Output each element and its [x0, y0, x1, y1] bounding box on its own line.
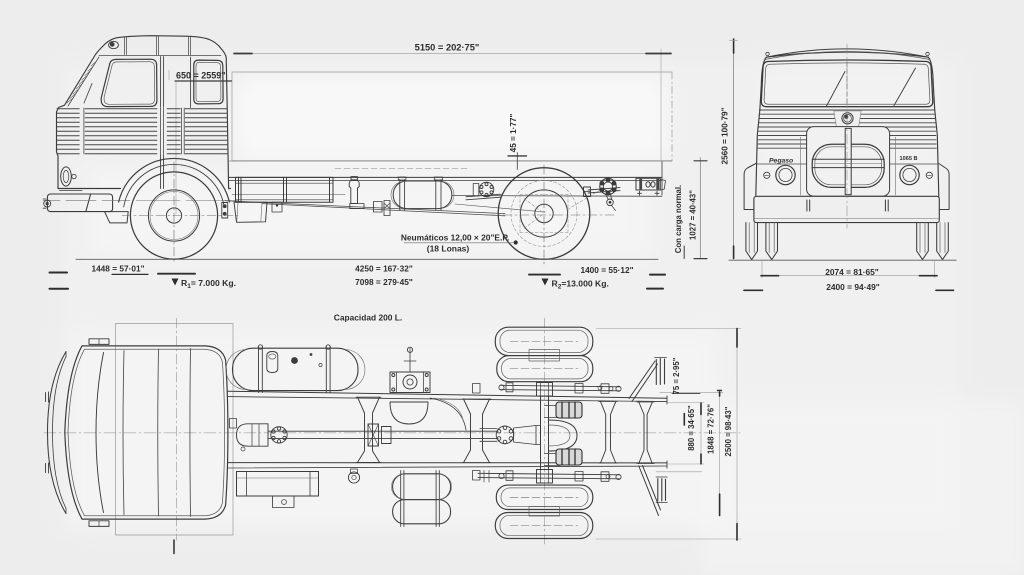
svg-text:650 = 2559": 650 = 2559" — [176, 71, 226, 81]
svg-text:45 = 1·77": 45 = 1·77" — [509, 114, 518, 153]
svg-text:1065 B: 1065 B — [900, 156, 918, 162]
svg-text:Pegaso: Pegaso — [769, 158, 793, 165]
svg-text:Neumáticos 12,00 × 20"E.P.: Neumáticos 12,00 × 20"E.P. — [401, 232, 509, 242]
svg-text:1448 = 57·01": 1448 = 57·01" — [91, 263, 144, 273]
svg-text:75 = 2·95": 75 = 2·95" — [672, 357, 681, 394]
svg-text:2560 = 100·79": 2560 = 100·79" — [721, 107, 730, 164]
svg-text:7098 = 279·45": 7098 = 279·45" — [355, 277, 413, 287]
svg-text:Capacidad 200 L.: Capacidad 200 L. — [334, 313, 402, 323]
svg-text:Con carga normal.: Con carga normal. — [674, 185, 683, 253]
svg-text:2500 = 98·43": 2500 = 98·43" — [724, 406, 733, 456]
svg-text:1027 = 40·43": 1027 = 40·43" — [689, 190, 698, 240]
svg-text:(18 Lonas): (18 Lonas) — [427, 243, 470, 253]
svg-text:4250 = 167·32": 4250 = 167·32" — [355, 264, 413, 274]
svg-text:1848 = 72·76": 1848 = 72·76" — [706, 404, 715, 454]
svg-text:2074 = 81·65": 2074 = 81·65" — [825, 267, 879, 277]
svg-text:5150 = 202·75": 5150 = 202·75" — [415, 43, 480, 53]
svg-text:1400 = 55·12": 1400 = 55·12" — [580, 265, 633, 275]
svg-text:2400 = 94·49": 2400 = 94·49" — [826, 282, 880, 292]
svg-text:880 = 34·65": 880 = 34·65" — [687, 405, 696, 451]
